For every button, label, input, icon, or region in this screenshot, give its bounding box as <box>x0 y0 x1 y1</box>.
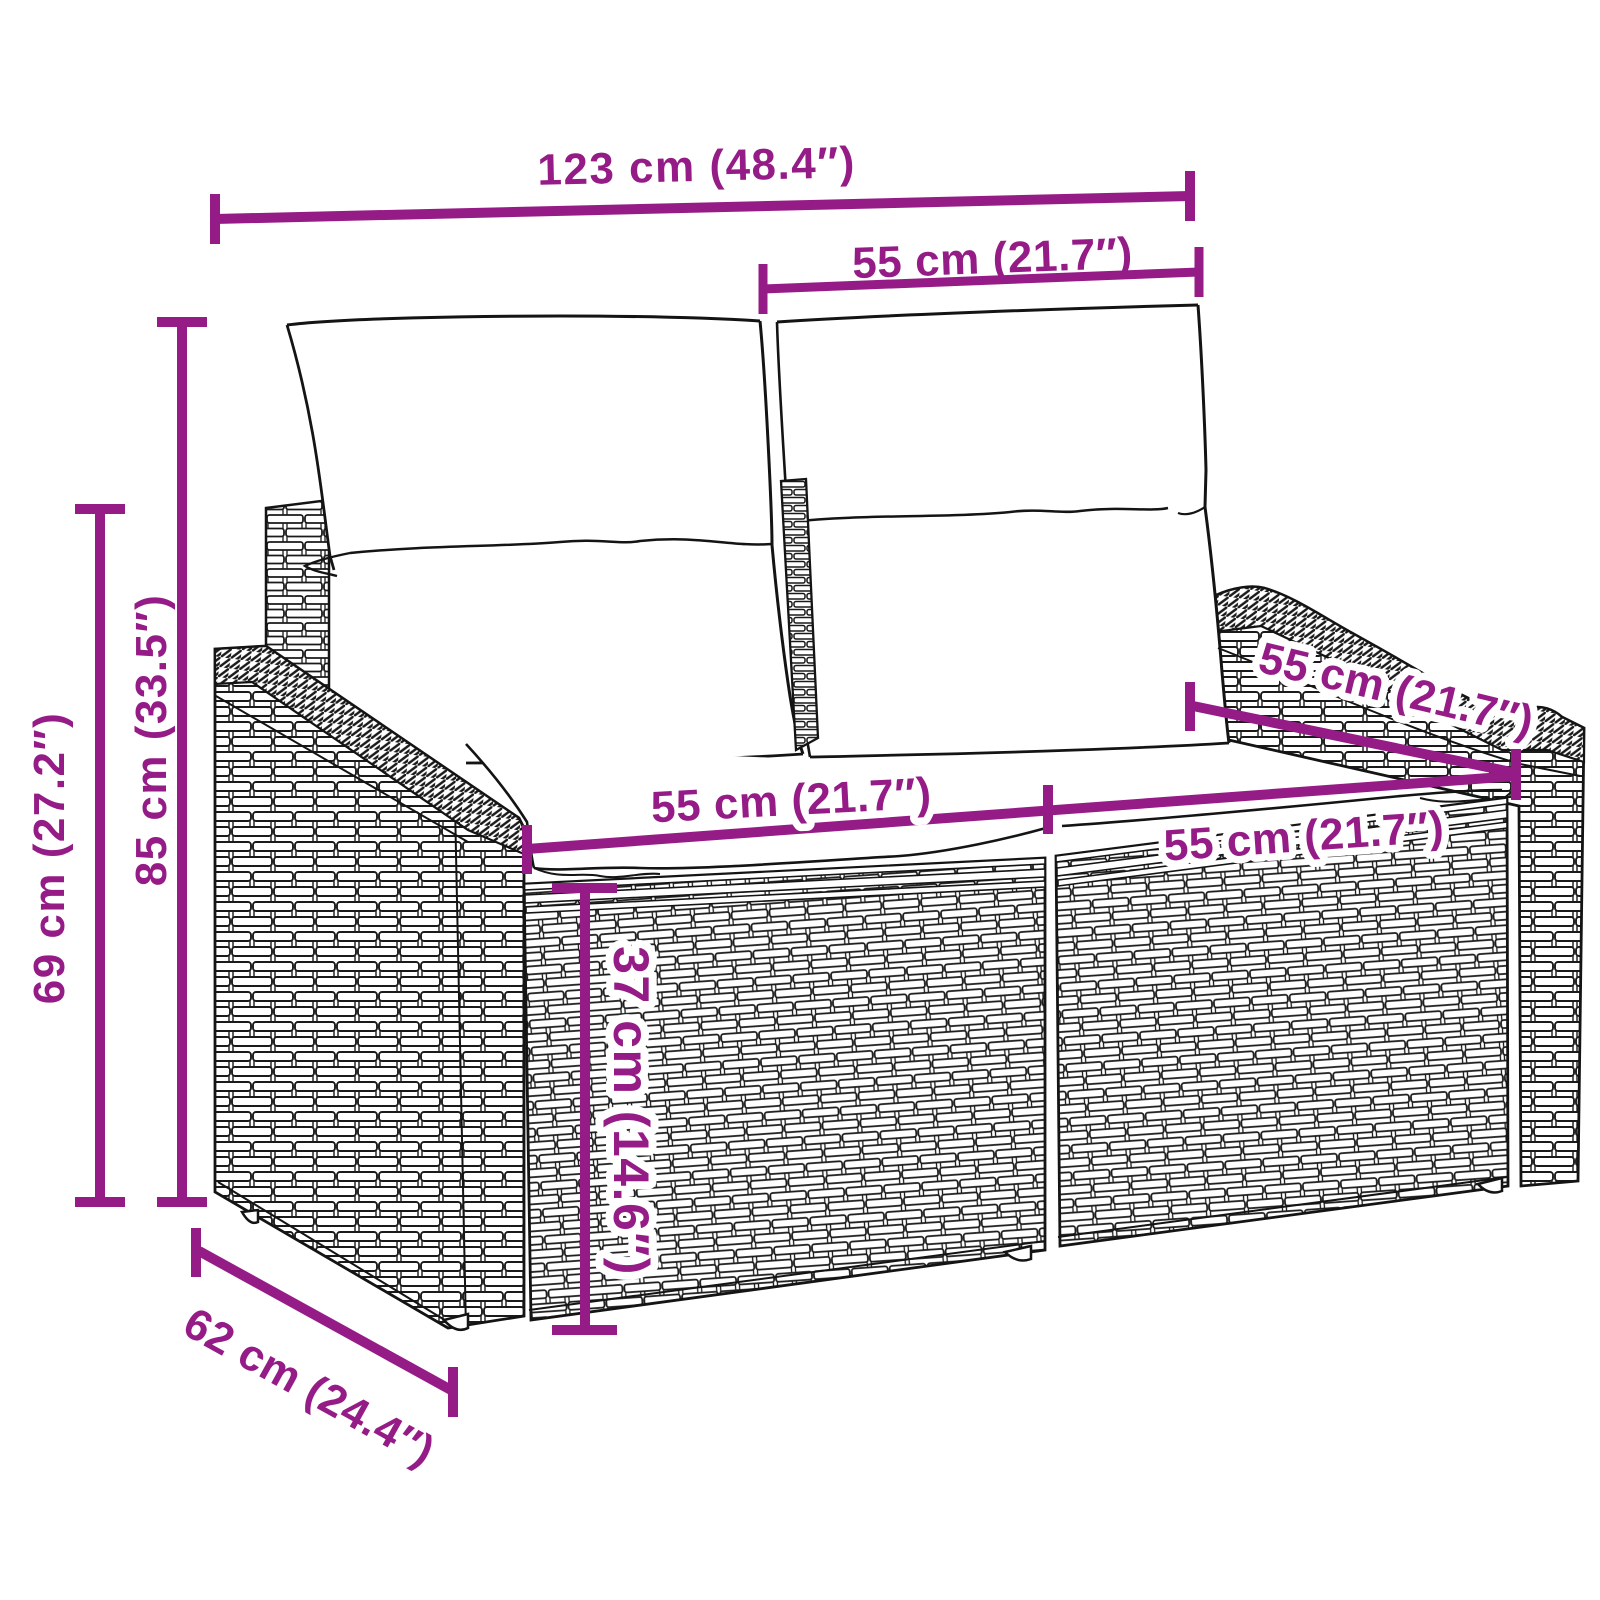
svg-text:85 cm (33.5″): 85 cm (33.5″) <box>127 594 176 887</box>
svg-text:37 cm (14.6″): 37 cm (14.6″) <box>603 946 659 1276</box>
svg-text:55 cm (21.7″): 55 cm (21.7″) <box>851 229 1133 288</box>
svg-text:69 cm (27.2″): 69 cm (27.2″) <box>25 712 74 1005</box>
svg-text:123 cm (48.4″): 123 cm (48.4″) <box>537 138 857 195</box>
